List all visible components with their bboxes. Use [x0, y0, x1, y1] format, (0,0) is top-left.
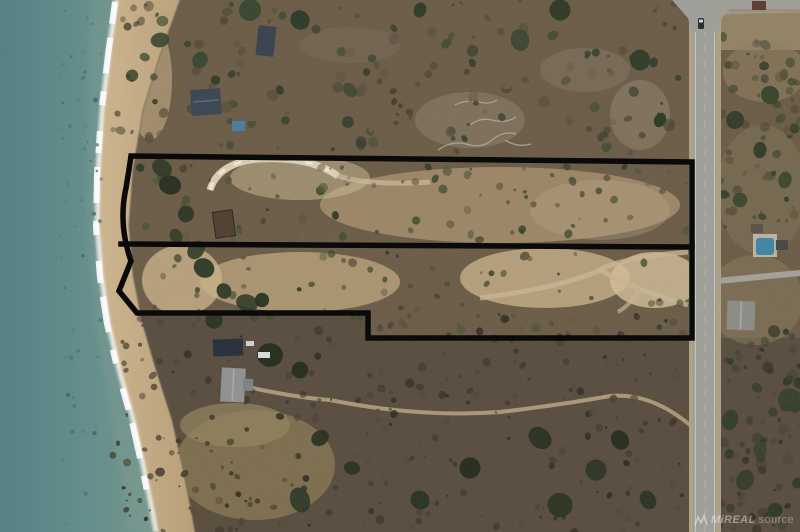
property-boundary-divider	[121, 244, 692, 247]
aerial-photo: MiREALsource	[0, 0, 800, 532]
aerial-photo-canvas	[0, 0, 800, 532]
photo-grain	[0, 0, 800, 532]
